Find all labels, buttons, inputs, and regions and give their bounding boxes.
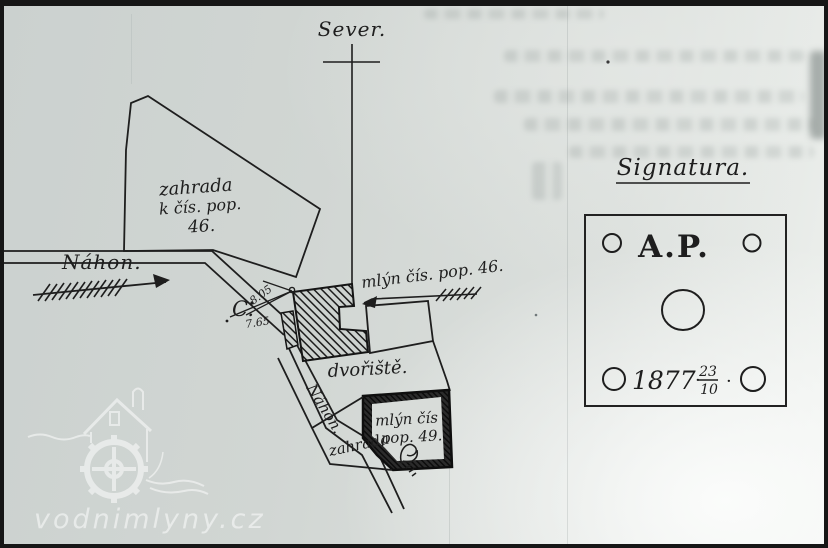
millrace-label-lower: Náhon.	[302, 380, 347, 437]
garden46-label: zahrada k čís. pop. 46.	[157, 174, 243, 240]
north-cross	[323, 44, 380, 284]
sluice-strip	[281, 311, 298, 349]
scanned-plan-document: Sever. zahrada k čís. pop. 46. Náhon. Ná…	[0, 0, 828, 548]
watermark-site-text: vodnimlyny.cz	[34, 504, 294, 535]
ink-speck	[535, 314, 538, 317]
point-c-label: C.	[232, 297, 254, 321]
flow-arrow	[33, 274, 170, 301]
ink-speck	[226, 320, 229, 323]
stamp-circle-top-right	[744, 235, 761, 252]
stamp-circle-bottom-right	[741, 367, 765, 391]
svg-text:46.: 46.	[186, 216, 215, 238]
mill46-arrow-feathers	[436, 287, 481, 301]
fraction-numerator: 23	[698, 364, 717, 380]
stamp-year: 1877	[632, 366, 696, 395]
stamp-circle-bottom-left	[603, 368, 625, 390]
arrowhead	[153, 274, 170, 288]
waterwheel-icon	[80, 435, 148, 503]
stamp-circle-top-left	[603, 234, 621, 252]
site-plan-drawing: Sever. zahrada k čís. pop. 46. Náhon. Ná…	[0, 0, 828, 548]
date-separator-dot: ·	[726, 371, 732, 392]
watermark-logo	[28, 389, 208, 504]
ink-speck	[606, 60, 609, 63]
mill46-building	[293, 284, 368, 361]
mill46-label: mlýn čís. pop. 46.	[360, 256, 504, 292]
mill-house-icon	[84, 389, 163, 479]
stamp-circle-center	[662, 290, 704, 330]
stamp-initials: A.P.	[637, 229, 710, 265]
courtyard-label: dvořiště.	[327, 357, 408, 382]
ink-speck	[250, 301, 253, 304]
fraction-denominator: 10	[700, 382, 718, 398]
millrace-label: Náhon.	[61, 250, 142, 274]
stamp-date-fraction: 23 10	[698, 364, 718, 398]
north-label: Sever.	[318, 17, 386, 41]
legend-title: Signatura.	[617, 155, 749, 181]
